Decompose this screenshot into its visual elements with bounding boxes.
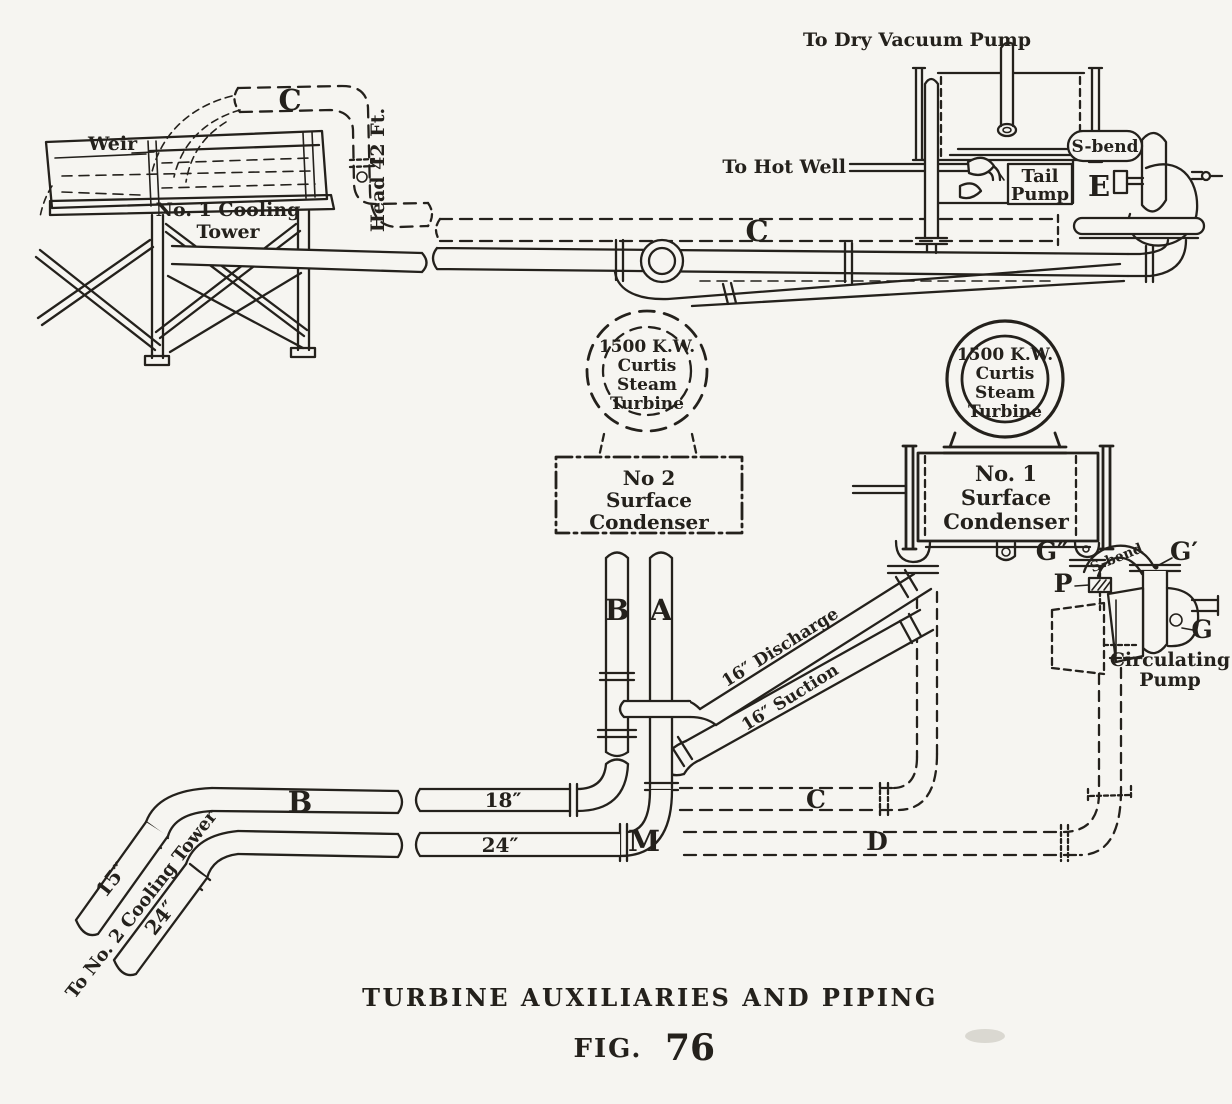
turbine2-kw: 1500 K.W. [599, 337, 695, 357]
hotwell-assembly: To Dry Vacuum Pump To Hot Well Tail Pump… [722, 29, 1222, 282]
condenser-no2: No 2 Surface Condenser [556, 434, 742, 534]
riser-c-label: C [278, 83, 301, 117]
main-c-label: C [745, 214, 768, 248]
p-label: P [1054, 569, 1073, 598]
g-prime-label: G′ [1170, 537, 1198, 566]
print-smudge [965, 1029, 1005, 1043]
pump-e-base [1074, 218, 1204, 234]
caption-fig-number: 76 [665, 1027, 715, 1069]
turbine-no2: 1500 K.W. Curtis Steam Turbine [587, 311, 707, 431]
condenser1-line3: Condenser [943, 509, 1069, 534]
to-dry-vacuum-pump-label: To Dry Vacuum Pump [803, 29, 1031, 51]
main-solid-pipe [433, 240, 1128, 306]
bottom-horizontal-pipes: 18″ 24″ B 15″ 24″ To No. 2 Cooling Tower [62, 784, 620, 1003]
circulating-pump: S-bend G″ G′ P G Circulating Pump [1036, 537, 1230, 691]
turbine2-line3: Steam [617, 375, 677, 395]
head-label: Head 42 Ft. [367, 108, 389, 232]
valve-e [1114, 171, 1127, 193]
condenser2-line1: No 2 [623, 466, 676, 490]
turbine-no1: 1500 K.W. Curtis Steam Turbine [947, 321, 1063, 437]
pipe-24-label: 24″ [482, 833, 519, 857]
cooling-tower-no1: Weir No. 1 Cooling Tower [36, 96, 334, 365]
tower-outlet-pipe [172, 246, 427, 272]
d-main-label: D [866, 827, 888, 856]
figure-76-diagram: Weir No. 1 Cooling Tower C Head 42 Ft. [0, 0, 1232, 1104]
circ-pump-name-line2: Pump [1139, 669, 1201, 691]
condenser2-line3: Condenser [589, 510, 709, 534]
g-label: G [1191, 615, 1212, 644]
pipe-b-horizontal-label: B [288, 785, 313, 819]
turbine2-line2: Curtis [618, 356, 677, 376]
condenser1-line1: No. 1 [975, 461, 1037, 486]
pipe-18-label: 18″ [485, 788, 522, 812]
weir-label: Weir [87, 133, 138, 155]
condenser-no1: No. 1 Surface Condenser [853, 433, 1113, 573]
tail-pump-line2: Pump [1011, 184, 1069, 205]
turbine1-kw: 1500 K.W. [957, 345, 1053, 365]
m-elbow-label: M [628, 824, 660, 858]
turbine1-line2: Curtis [976, 364, 1035, 384]
figure-caption: TURBINE AUXILIARIES AND PIPING FIG. 76 [362, 983, 1005, 1069]
caption-fig-label: FIG. [574, 1034, 643, 1064]
cooling-tower-name-line2: Tower [196, 221, 260, 243]
figure-page: Weir No. 1 Cooling Tower C Head 42 Ft. [0, 0, 1232, 1104]
to-hot-well-label: To Hot Well [722, 156, 846, 178]
main-dashed-line-c: C [436, 214, 1058, 248]
pipe-b-vertical-label: B [605, 593, 630, 627]
circ-pump-name-line1: Circulating [1110, 649, 1230, 671]
turbine1-line4: Turbine [968, 402, 1042, 422]
cooling-tower-name-line1: No. 1 Cooling [156, 199, 301, 221]
pump-e-inlet-tube [1142, 133, 1166, 211]
c-cold-main-label: C [806, 785, 826, 814]
pump-e-label: E [1088, 169, 1110, 203]
pipe-a-vertical-label: A [649, 593, 673, 627]
condenser2-line2: Surface [606, 488, 692, 512]
s-bend-label: S-bend [1072, 137, 1139, 157]
condenser1-line2: Surface [961, 485, 1051, 510]
turbine1-line3: Steam [975, 383, 1035, 403]
caption-title: TURBINE AUXILIARIES AND PIPING [362, 983, 938, 1012]
turbine2-line4: Turbine [610, 394, 684, 414]
g-double-prime-label: G″ [1036, 537, 1069, 566]
vertical-pipes-b-a: B A M [577, 553, 690, 862]
